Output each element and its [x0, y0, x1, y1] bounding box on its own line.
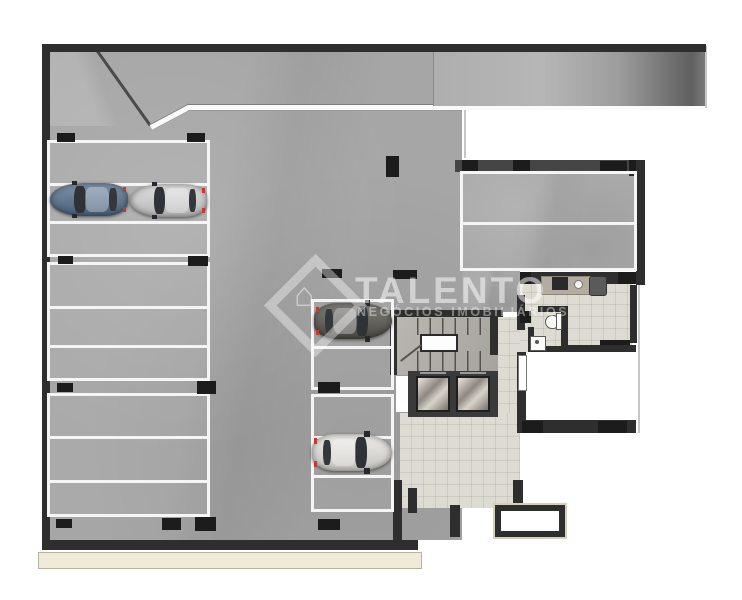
structural-column — [393, 270, 417, 279]
car-top-view-silver-car — [130, 184, 207, 217]
car-top-view-blue-suv — [50, 183, 128, 216]
structural-column — [162, 518, 181, 530]
side-mirror — [364, 431, 370, 436]
taillight — [123, 187, 126, 192]
side-mirror — [365, 336, 370, 341]
structural-column — [322, 269, 342, 278]
car-roof — [85, 187, 109, 211]
structural-column — [197, 381, 216, 394]
side-mirror — [364, 468, 370, 473]
windshield — [355, 437, 367, 467]
taillight — [316, 330, 319, 335]
structural-column — [187, 133, 205, 142]
taillight — [202, 208, 205, 213]
structural-column — [57, 383, 73, 392]
side-mirror — [365, 300, 370, 305]
stall-divider-line — [314, 475, 391, 478]
stall-divider-line — [50, 436, 207, 439]
stall-divider-line — [50, 480, 207, 483]
structural-column — [58, 256, 73, 264]
windshield — [154, 187, 166, 214]
rear-window — [189, 189, 197, 211]
side-mirror — [152, 215, 157, 220]
structural-column — [57, 133, 75, 142]
stall-divider-line — [463, 222, 634, 225]
car-top-view-dark-car — [314, 303, 392, 339]
plan-layer — [0, 0, 742, 600]
side-mirror — [72, 214, 77, 219]
structural-column — [318, 519, 340, 530]
rear-window — [109, 188, 117, 210]
car-roof — [165, 188, 189, 212]
rear-window — [323, 440, 331, 465]
windshield — [74, 186, 86, 213]
parking-floor-plan: ⌂ TALENTO NEGÓCIOS IMOBILIÁRIOS — [0, 0, 742, 600]
structural-column — [56, 519, 72, 528]
taillight — [314, 461, 317, 467]
car-roof — [333, 308, 357, 335]
side-mirror — [152, 182, 157, 187]
stall-divider-line — [314, 346, 391, 349]
structural-column — [386, 156, 399, 177]
structural-column — [195, 517, 216, 531]
stall-divider-line — [50, 221, 207, 224]
structural-column — [188, 256, 208, 266]
taillight — [202, 188, 205, 193]
side-mirror — [72, 181, 77, 186]
parking-stall-group-left-3 — [47, 393, 210, 517]
car-roof — [331, 439, 356, 466]
taillight — [314, 438, 317, 444]
structural-column — [318, 382, 340, 393]
car-top-view-white-car — [312, 434, 392, 471]
parking-stall-group-right-1 — [460, 171, 637, 271]
parking-stall-group-left-2 — [47, 262, 210, 381]
stall-divider-line — [50, 306, 207, 309]
taillight — [316, 307, 319, 312]
taillight — [123, 207, 126, 212]
rear-window — [325, 309, 333, 333]
windshield — [356, 306, 368, 336]
stall-divider-line — [50, 345, 207, 348]
